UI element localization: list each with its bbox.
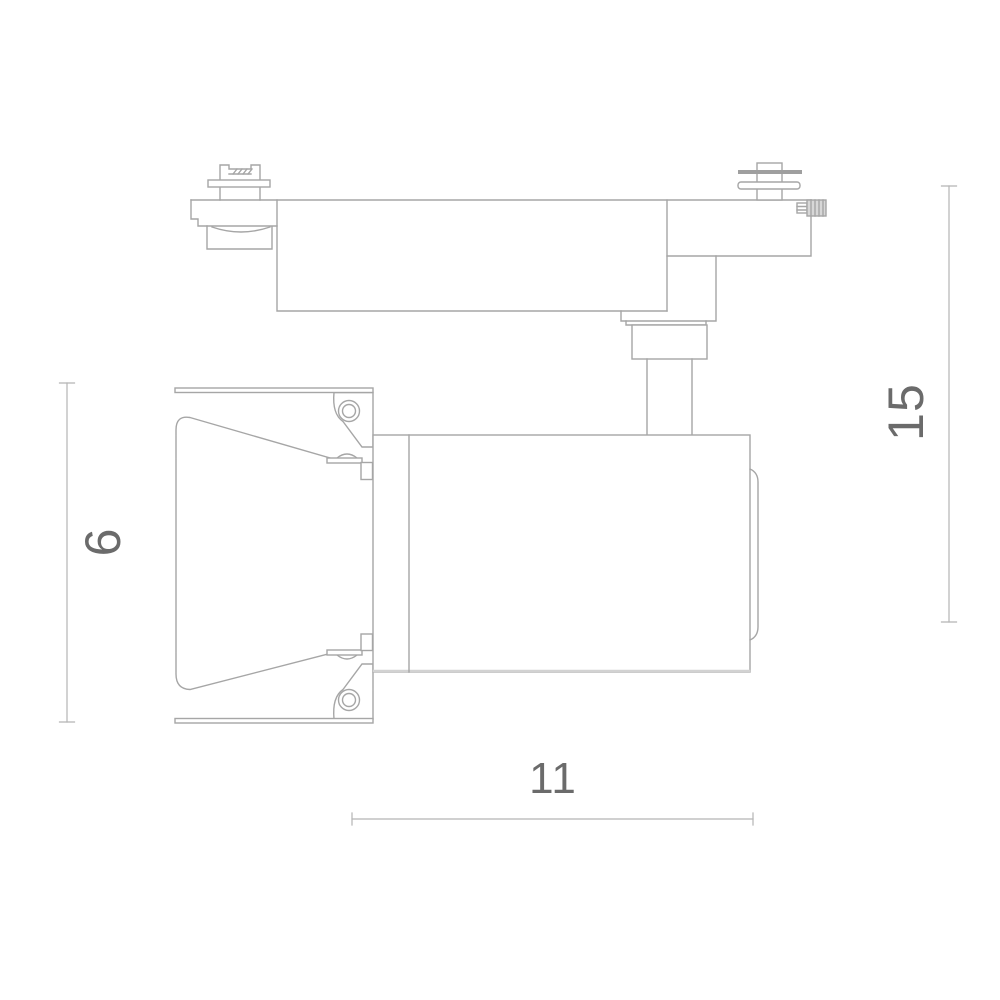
lamp-body xyxy=(373,435,758,672)
fixture-linework xyxy=(175,163,826,723)
track-adapter xyxy=(191,200,811,435)
top-latch-block xyxy=(361,463,373,480)
adapter-roller-arc xyxy=(212,227,270,232)
suspension-stem xyxy=(647,359,692,435)
cone-profile xyxy=(176,417,332,689)
dim-label-6: 6 xyxy=(75,528,131,557)
left-screw-flange xyxy=(208,180,270,187)
reflector-cone xyxy=(175,388,373,723)
left-screw-knurl xyxy=(233,169,252,174)
right-contact-screw xyxy=(738,163,802,200)
bottom-latch-block xyxy=(361,634,373,651)
stem-collar xyxy=(632,325,707,359)
technical-drawing: 6 15 11 xyxy=(0,0,1000,1000)
top-latch-bar xyxy=(327,458,362,463)
trim-flange-bottom xyxy=(175,719,373,724)
dim-label-15: 15 xyxy=(878,383,934,441)
left-contact-screw xyxy=(208,165,270,200)
drawing-canvas: 6 15 11 xyxy=(0,0,1000,1000)
right-screw-flange xyxy=(738,182,800,189)
mounting-tab-top xyxy=(334,393,373,448)
dim-label-11: 11 xyxy=(529,754,577,803)
dimension-left xyxy=(60,383,75,722)
dimension-bottom xyxy=(352,813,753,825)
adjustment-knob xyxy=(797,200,826,216)
bottom-latch-bar xyxy=(327,650,362,655)
lamp-barrel xyxy=(373,435,750,672)
adapter-left-step xyxy=(191,200,277,226)
dimension-right xyxy=(942,186,957,622)
mounting-tab-bottom xyxy=(334,664,373,719)
adapter-bar-outline xyxy=(277,200,667,311)
adapter-extension xyxy=(667,200,811,256)
knob-neck xyxy=(797,203,807,213)
right-screw-washer xyxy=(738,170,802,174)
rear-cap-bulge xyxy=(750,469,758,640)
trim-flange-top xyxy=(175,388,373,393)
